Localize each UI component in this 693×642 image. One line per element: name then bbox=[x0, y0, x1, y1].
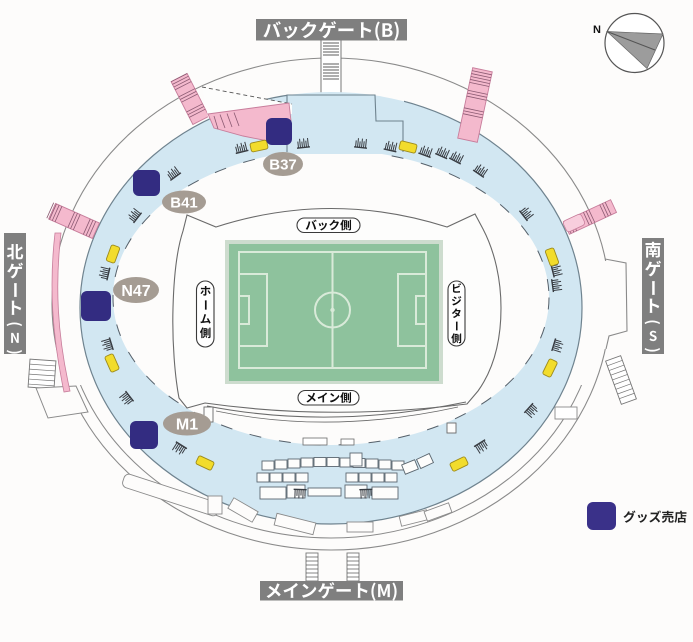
svg-text:B37: B37 bbox=[269, 156, 297, 173]
svg-text:M1: M1 bbox=[176, 416, 198, 433]
svg-text:N47: N47 bbox=[121, 283, 150, 300]
svg-text:B41: B41 bbox=[170, 194, 198, 211]
svg-text:N: N bbox=[593, 24, 601, 36]
